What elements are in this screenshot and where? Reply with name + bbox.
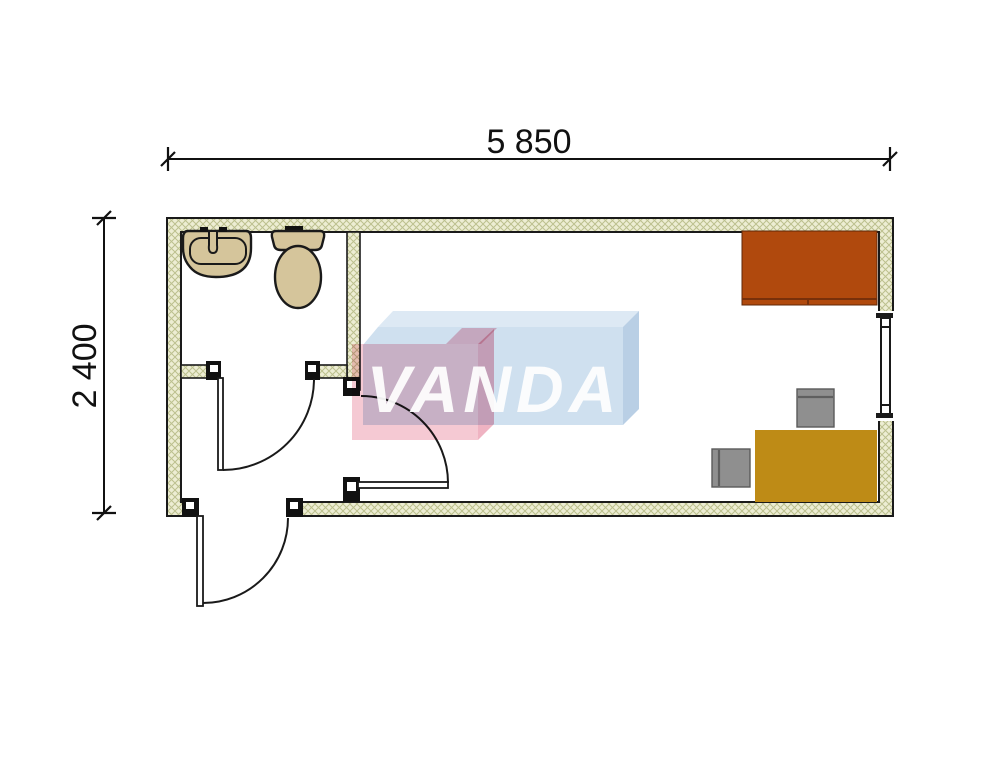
vanda-logo: VANDA — [352, 311, 639, 440]
logo-blue-block-side — [623, 311, 639, 425]
logo-wordmark: VANDA — [367, 352, 622, 426]
bathroom-wall-left-segment — [181, 365, 209, 378]
dimension-left-label: 2 400 — [66, 323, 104, 408]
dimension-top-value: 5 850 — [486, 123, 571, 161]
entrance-door-swing-arc — [203, 518, 288, 603]
exterior-door-opening — [199, 499, 288, 519]
entrance-door-leaf — [197, 516, 203, 606]
floor-plan-page: VANDA 5 850 2 400 — [0, 0, 1000, 757]
chair-left — [712, 449, 750, 487]
room-door-leaf — [358, 482, 448, 488]
bathroom-door-leaf — [218, 378, 223, 470]
bathroom-wall-right-segment — [319, 365, 347, 378]
wardrobe — [742, 231, 877, 305]
floor-plan-drawing: VANDA 5 850 2 400 — [0, 0, 1000, 757]
toilet-icon — [272, 226, 324, 308]
door-jambs — [182, 361, 360, 517]
sink-tap-handle-right — [219, 227, 227, 232]
dimension-top-label: 5 850 — [486, 123, 571, 161]
window-sash — [881, 318, 890, 414]
toilet-bowl — [275, 246, 321, 308]
bathroom-fixtures — [183, 226, 324, 308]
dimension-left-value: 2 400 — [66, 323, 104, 408]
desk — [755, 430, 877, 502]
chair-top — [797, 389, 834, 427]
furniture — [712, 231, 877, 502]
sink-tap-handle-left — [200, 227, 208, 232]
sink-icon — [183, 227, 251, 277]
jamb-notches — [186, 365, 356, 509]
sink-faucet — [209, 231, 217, 253]
logo-blue-block-top — [378, 311, 639, 327]
bathroom-door-swing-arc — [223, 379, 314, 470]
